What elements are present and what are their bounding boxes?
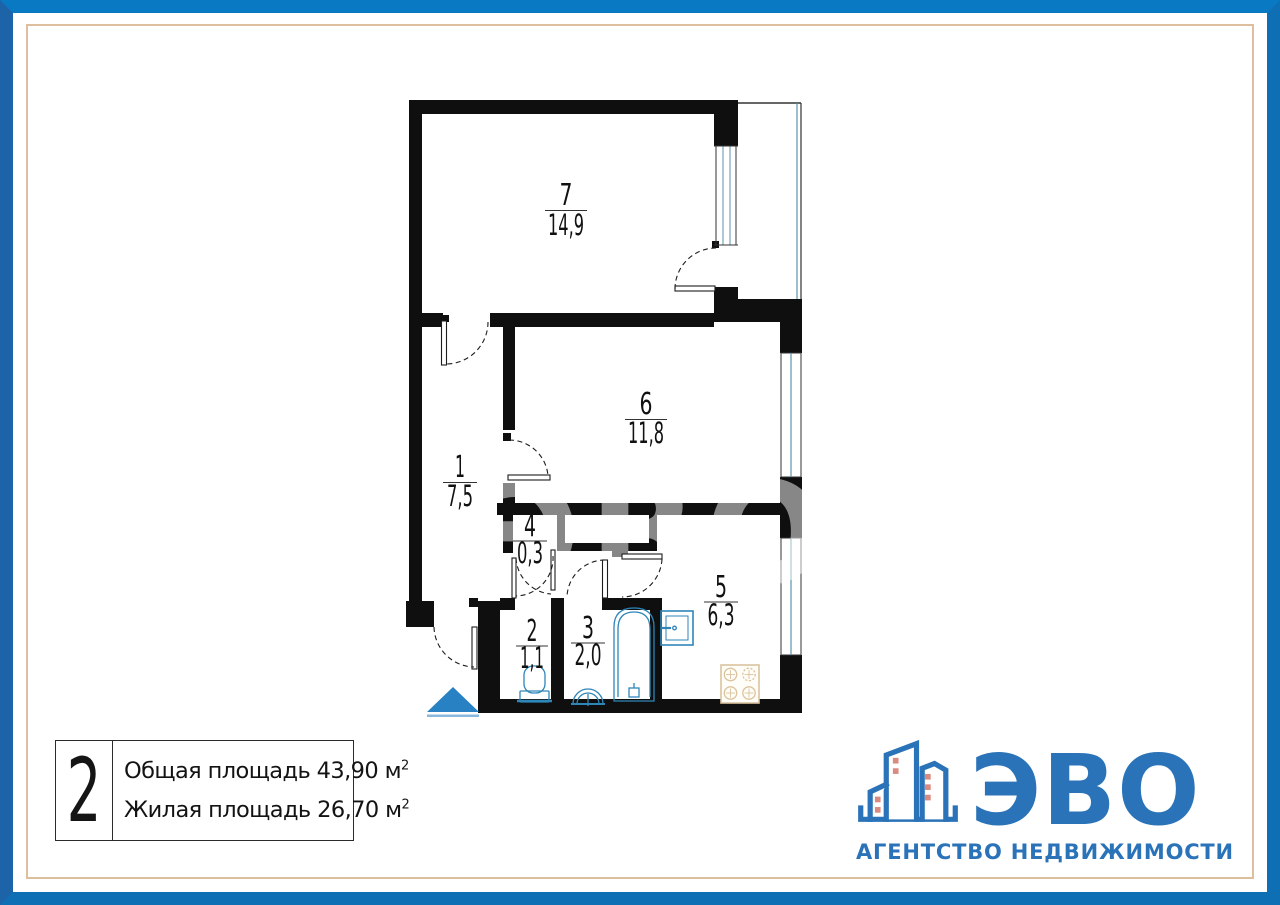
- svg-text:1,1: 1,1: [520, 641, 544, 675]
- total-area-line: Общая площадь 43,90 м2: [124, 758, 409, 784]
- room-label-2: 2 1,1: [516, 614, 548, 675]
- logo-subtitle: АГЕНТСТВО НЕДВИЖИМОСТИ: [856, 840, 1202, 864]
- svg-text:6,3: 6,3: [708, 598, 735, 632]
- flat-number: 2: [67, 747, 102, 835]
- bath-sink-icon: [571, 689, 605, 706]
- logo-top-row: ЭВО: [856, 732, 1202, 831]
- balcony-window: [714, 146, 738, 245]
- room-label-7: 7 14,9: [545, 178, 587, 242]
- bathtub-icon: [614, 608, 654, 701]
- agency-logo: ЭВО АГЕНТСТВО НЕДВИЖИМОСТИ: [856, 732, 1202, 864]
- floor-plan-sheet: ЭВО: [0, 0, 1280, 905]
- balcony-door: [675, 248, 716, 291]
- living-area-label: Жилая площадь: [124, 797, 311, 823]
- svg-text:14,9: 14,9: [548, 208, 584, 242]
- stove-icon: [721, 665, 759, 703]
- room-label-6: 6 11,8: [625, 387, 667, 450]
- room7-door: [442, 321, 489, 365]
- flat-number-cell: 2: [56, 741, 113, 840]
- area-text-cell: Общая площадь 43,90 м2 Жилая площадь 26,…: [113, 741, 409, 840]
- svg-text:11,8: 11,8: [628, 416, 664, 450]
- living-area-sup: 2: [401, 798, 409, 813]
- total-area-sup: 2: [401, 758, 409, 773]
- total-area-label: Общая площадь: [124, 758, 310, 784]
- svg-text:7,5: 7,5: [447, 479, 473, 513]
- total-area-value: 43,90 м: [317, 758, 401, 784]
- kitchen-sink-icon: [661, 611, 693, 645]
- buildings-icon: [856, 732, 960, 831]
- logo-title: ЭВО: [970, 751, 1201, 831]
- svg-text:0,3: 0,3: [517, 536, 543, 570]
- entrance-marker: [427, 687, 479, 717]
- entrance-door: [434, 627, 477, 669]
- floor-plan: ЭВО: [400, 95, 810, 725]
- room-label-1: 1 7,5: [443, 450, 477, 513]
- walls: [406, 100, 802, 713]
- room-label-3: 3 2,0: [571, 611, 605, 672]
- living-area-line: Жилая площадь 26,70 м2: [124, 797, 409, 823]
- living-area-value: 26,70 м: [317, 797, 401, 823]
- svg-text:2,0: 2,0: [575, 638, 602, 672]
- area-info-box: 2 Общая площадь 43,90 м2 Жилая площадь 2…: [55, 740, 354, 841]
